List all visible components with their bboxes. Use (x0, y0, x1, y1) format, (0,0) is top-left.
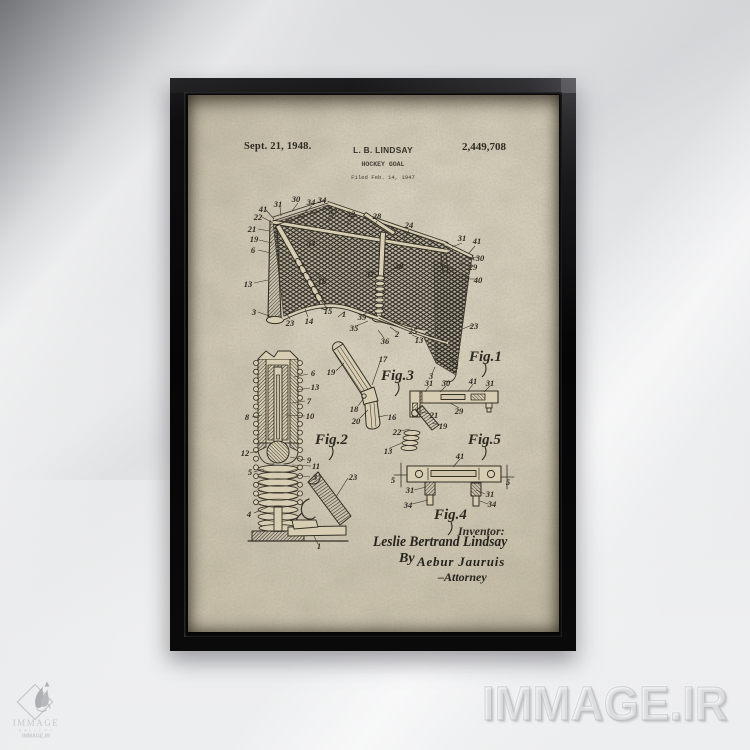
svg-text:30: 30 (291, 194, 301, 204)
svg-text:19: 19 (250, 234, 259, 244)
svg-text:G A L L E R Y: G A L L E R Y (19, 729, 54, 733)
svg-text:30: 30 (441, 378, 451, 388)
svg-text:IMMAGE.IR: IMMAGE.IR (22, 734, 50, 740)
svg-text:31: 31 (273, 199, 283, 209)
svg-text:19: 19 (439, 421, 448, 431)
svg-text:2: 2 (394, 329, 400, 339)
svg-text:1: 1 (317, 541, 321, 551)
svg-text:28: 28 (372, 211, 382, 221)
svg-text:38: 38 (394, 261, 404, 271)
svg-text:3: 3 (251, 307, 257, 317)
svg-text:10: 10 (306, 411, 315, 421)
svg-text:31: 31 (485, 489, 495, 499)
svg-text:13: 13 (384, 446, 393, 456)
svg-text:37: 37 (365, 269, 375, 279)
svg-text:23: 23 (285, 318, 295, 328)
svg-text:22: 22 (253, 212, 263, 222)
svg-text:23: 23 (469, 321, 479, 331)
svg-text:24: 24 (404, 220, 414, 230)
svg-text:8: 8 (245, 412, 250, 422)
svg-text:41: 41 (472, 236, 482, 246)
svg-text:39: 39 (357, 312, 367, 322)
svg-text:21: 21 (429, 410, 439, 420)
svg-text:29: 29 (468, 262, 478, 272)
svg-text:Fig.4: Fig.4 (433, 507, 467, 523)
svg-text:13: 13 (415, 335, 424, 345)
svg-text:34: 34 (306, 197, 316, 207)
svg-text:12: 12 (241, 448, 250, 458)
svg-text:16: 16 (388, 412, 397, 422)
svg-text:40: 40 (473, 275, 483, 285)
svg-text:20: 20 (351, 416, 361, 426)
svg-text:1: 1 (342, 309, 346, 319)
svg-text:Fig.5: Fig.5 (467, 432, 501, 448)
svg-text:3: 3 (312, 472, 318, 482)
svg-text:31: 31 (424, 378, 434, 388)
svg-text:19: 19 (327, 367, 336, 377)
svg-text:4: 4 (246, 509, 251, 519)
svg-text:15: 15 (324, 306, 333, 316)
svg-text:IMMAGE: IMMAGE (13, 718, 60, 728)
svg-text:36: 36 (380, 336, 390, 346)
svg-text:13: 13 (244, 279, 253, 289)
svg-text:32: 32 (346, 209, 356, 219)
svg-text:31: 31 (405, 485, 415, 495)
svg-text:31: 31 (457, 233, 467, 243)
svg-text:13: 13 (311, 382, 320, 392)
svg-text:29: 29 (454, 406, 464, 416)
svg-text:18: 18 (350, 404, 359, 414)
svg-text:31: 31 (485, 378, 495, 388)
svg-text:16: 16 (318, 276, 327, 286)
svg-text:34: 34 (317, 195, 327, 205)
svg-text:17: 17 (379, 354, 388, 364)
svg-text:1: 1 (455, 361, 459, 371)
svg-text:23: 23 (348, 472, 358, 482)
svg-text:33: 33 (328, 206, 338, 216)
svg-text:34: 34 (487, 499, 497, 509)
svg-text:5: 5 (248, 467, 253, 477)
svg-text:35: 35 (349, 323, 359, 333)
svg-text:41: 41 (455, 451, 465, 461)
svg-text:5: 5 (391, 475, 396, 485)
svg-text:14: 14 (305, 316, 314, 326)
svg-text:11: 11 (312, 461, 320, 471)
svg-text:22: 22 (392, 427, 402, 437)
svg-text:7: 7 (307, 396, 312, 406)
svg-text:Fig.2: Fig.2 (314, 432, 348, 448)
svg-text:34: 34 (306, 238, 316, 248)
svg-text:6: 6 (251, 245, 256, 255)
svg-text:Fig.1: Fig.1 (468, 349, 502, 365)
svg-text:41: 41 (468, 376, 478, 386)
svg-text:6: 6 (311, 368, 316, 378)
svg-text:Fig.3: Fig.3 (380, 368, 414, 384)
svg-text:21: 21 (247, 224, 257, 234)
svg-text:34: 34 (403, 500, 413, 510)
svg-text:5: 5 (506, 477, 511, 487)
